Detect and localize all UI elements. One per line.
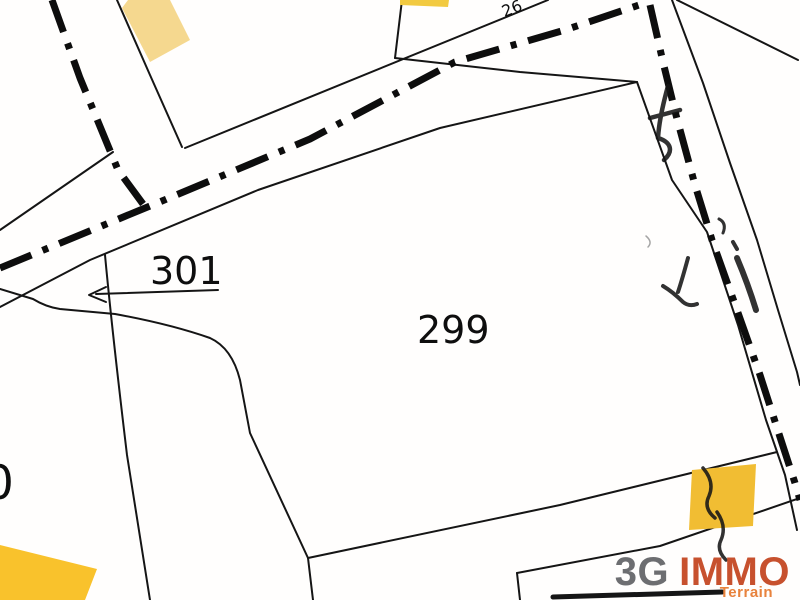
inscription-stroke xyxy=(733,242,737,249)
road-edge-nw-left xyxy=(0,152,113,230)
buildings xyxy=(0,0,756,600)
parcel-label-left-partial: 0 xyxy=(0,456,14,511)
boundary-main-sw-ne xyxy=(0,2,648,268)
map-canvas: 299 301 0 26 xyxy=(0,0,800,600)
commune-boundary xyxy=(0,0,800,500)
inscription-faint-mark xyxy=(646,236,650,247)
parcel-west-steep-line xyxy=(105,255,150,600)
parcel-line-top xyxy=(395,0,402,58)
road-edge-nw-right xyxy=(185,0,548,148)
inscription-stroke xyxy=(737,258,756,310)
right-road-west-edge xyxy=(637,82,797,530)
parcel-label-301: 301 xyxy=(150,249,223,293)
boundary-branch-top-left xyxy=(52,0,143,204)
watermark-logo: 3GIMMO Terrain xyxy=(615,552,790,600)
parcel-299-north-edge xyxy=(0,82,637,307)
building-bottom-left xyxy=(0,545,97,600)
building-top-left xyxy=(122,0,190,62)
parcel-299-west-edge xyxy=(0,289,313,600)
right-road-east-edge xyxy=(672,0,800,385)
boundary-right-road xyxy=(650,5,800,500)
logo-prefix: 3G xyxy=(615,550,669,594)
cadastral-map: 299 301 0 26 3GIMMO Terrain xyxy=(0,0,800,600)
parcel-label-299: 299 xyxy=(417,308,490,352)
inscription-stroke xyxy=(719,219,724,233)
south-parcel-corner-line xyxy=(517,573,520,600)
inscription-stroke xyxy=(650,86,680,160)
parcel-line-northeast xyxy=(677,0,798,60)
inscription-stroke xyxy=(663,258,697,305)
building-top-sliver xyxy=(400,0,449,7)
